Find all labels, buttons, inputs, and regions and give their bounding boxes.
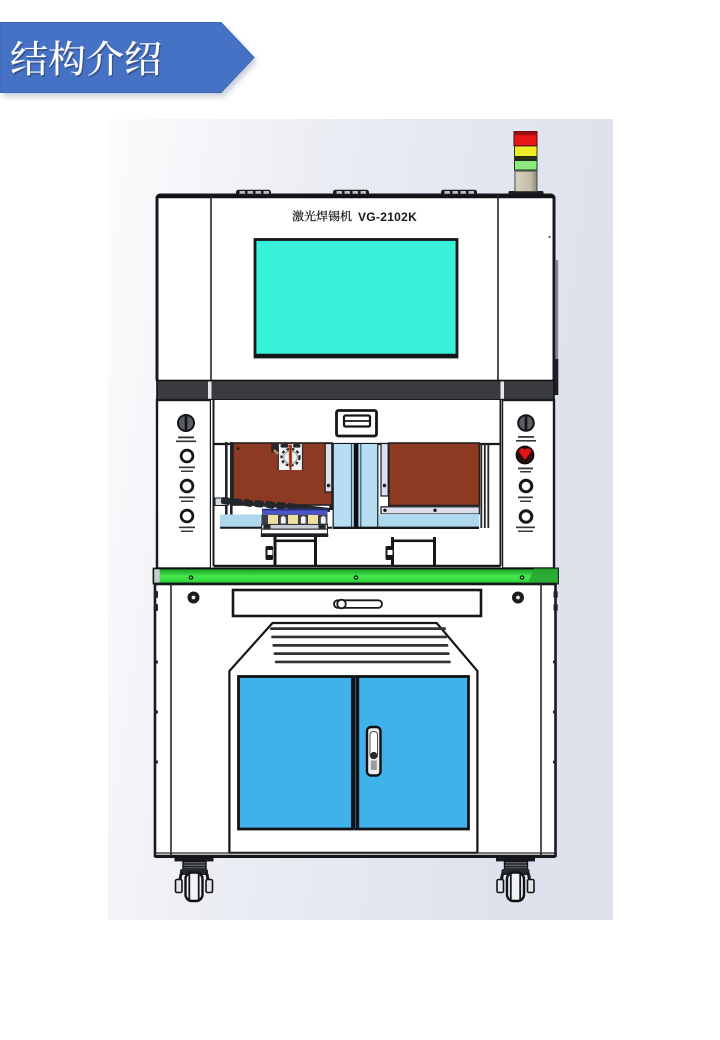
svg-text:VG-2102K: VG-2102K [358, 210, 417, 224]
